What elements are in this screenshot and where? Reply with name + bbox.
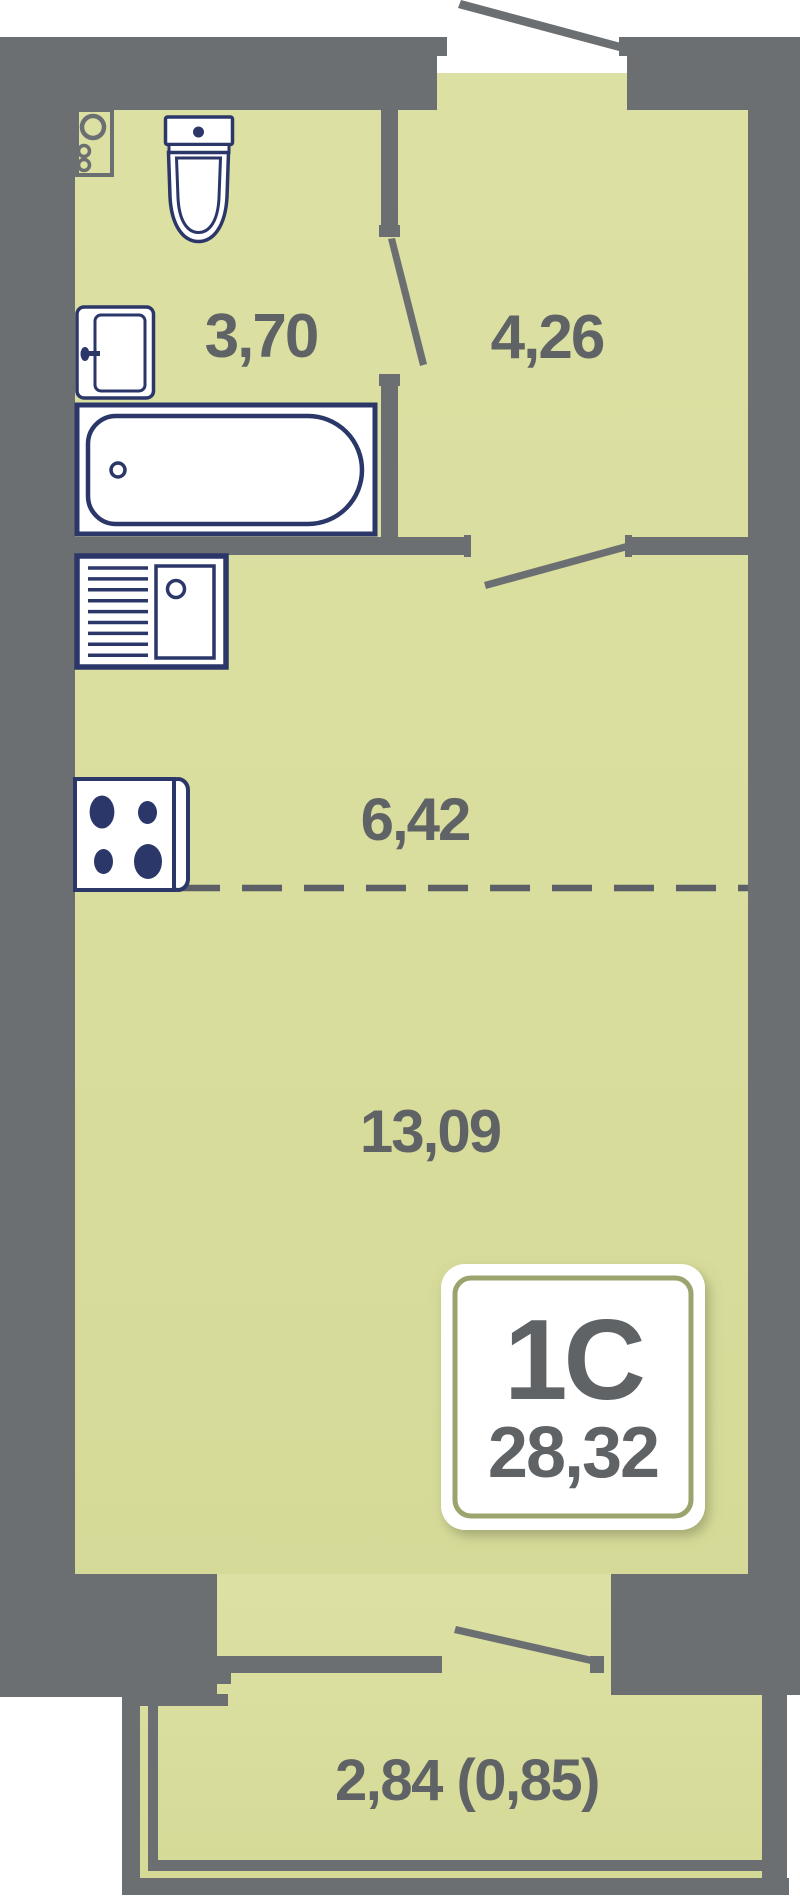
svg-text:28,32: 28,32 [488,1413,658,1493]
svg-text:1С: 1С [504,1297,643,1424]
svg-text:4,26: 4,26 [491,303,604,372]
svg-text:13,09: 13,09 [360,1098,501,1165]
svg-text:6,42: 6,42 [361,786,470,853]
svg-text:3,70: 3,70 [205,302,318,371]
svg-text:2,84 (0,85): 2,84 (0,85) [335,1748,599,1813]
